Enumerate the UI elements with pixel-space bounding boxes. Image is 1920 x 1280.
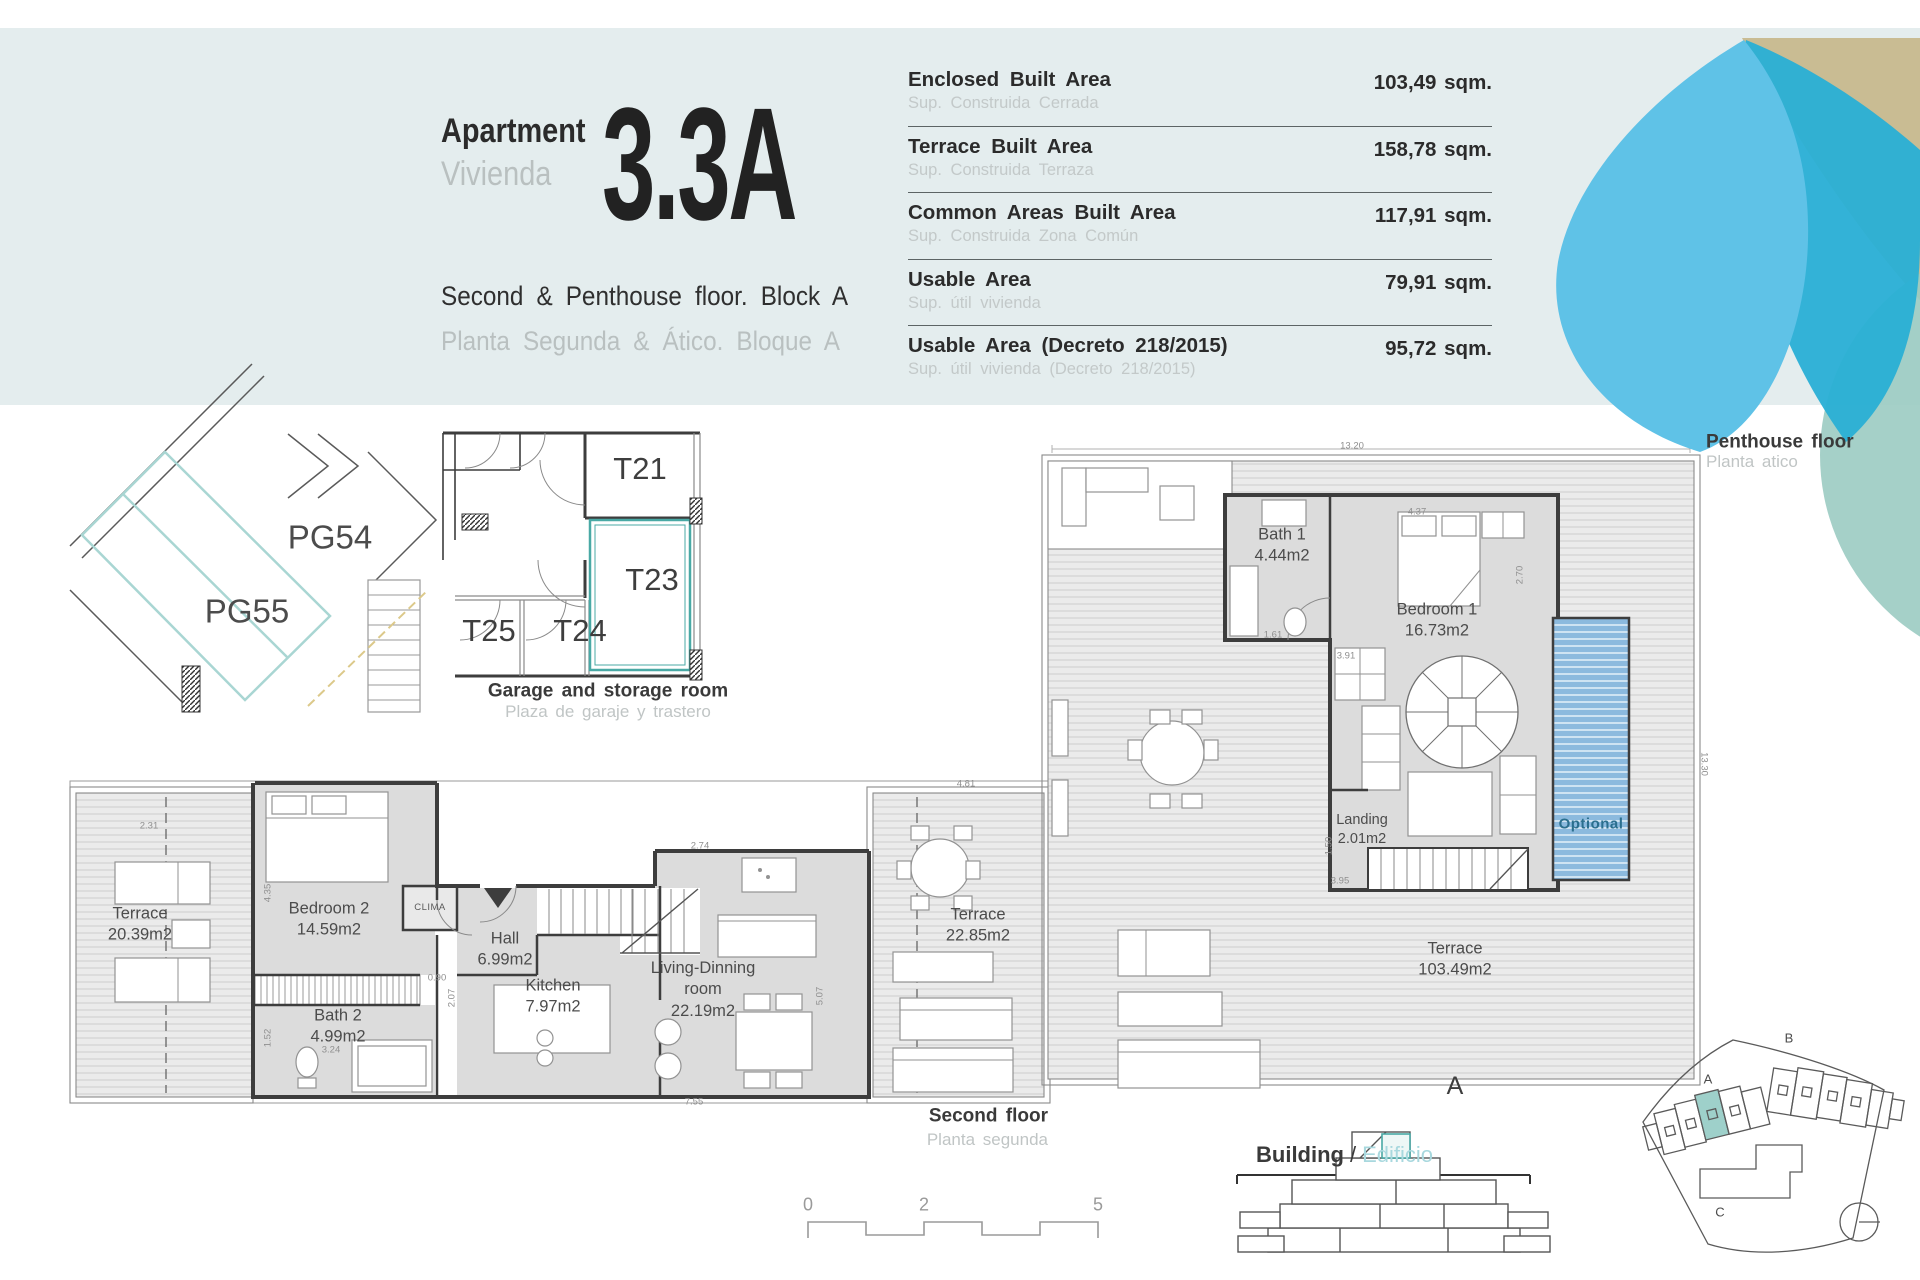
storage-plan — [443, 433, 702, 680]
building-elevation — [1237, 1132, 1550, 1252]
second-floor-plan — [70, 781, 1050, 1103]
brand-logo — [1500, 0, 1920, 700]
garage-plan — [70, 364, 436, 712]
floorplan-sheet: Apartment Vivienda 3.3A Second & Penthou… — [0, 0, 1920, 1280]
scale-bar — [808, 1222, 1098, 1238]
logo-blue-petal — [1556, 40, 1808, 452]
